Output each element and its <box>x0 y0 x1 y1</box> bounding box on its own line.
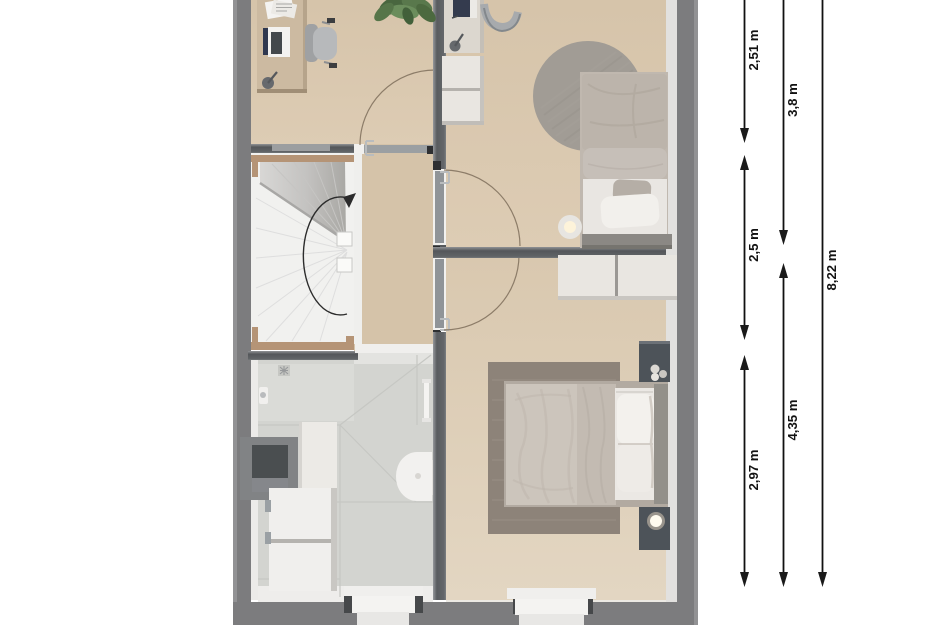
svg-text:2,97 m: 2,97 m <box>746 449 761 490</box>
svg-text:4,35 m: 4,35 m <box>785 399 800 440</box>
svg-text:2,51 m: 2,51 m <box>746 29 761 70</box>
svg-text:3,8 m: 3,8 m <box>785 83 800 117</box>
svg-text:2,5 m: 2,5 m <box>746 228 761 262</box>
svg-text:8,22 m: 8,22 m <box>824 249 839 290</box>
